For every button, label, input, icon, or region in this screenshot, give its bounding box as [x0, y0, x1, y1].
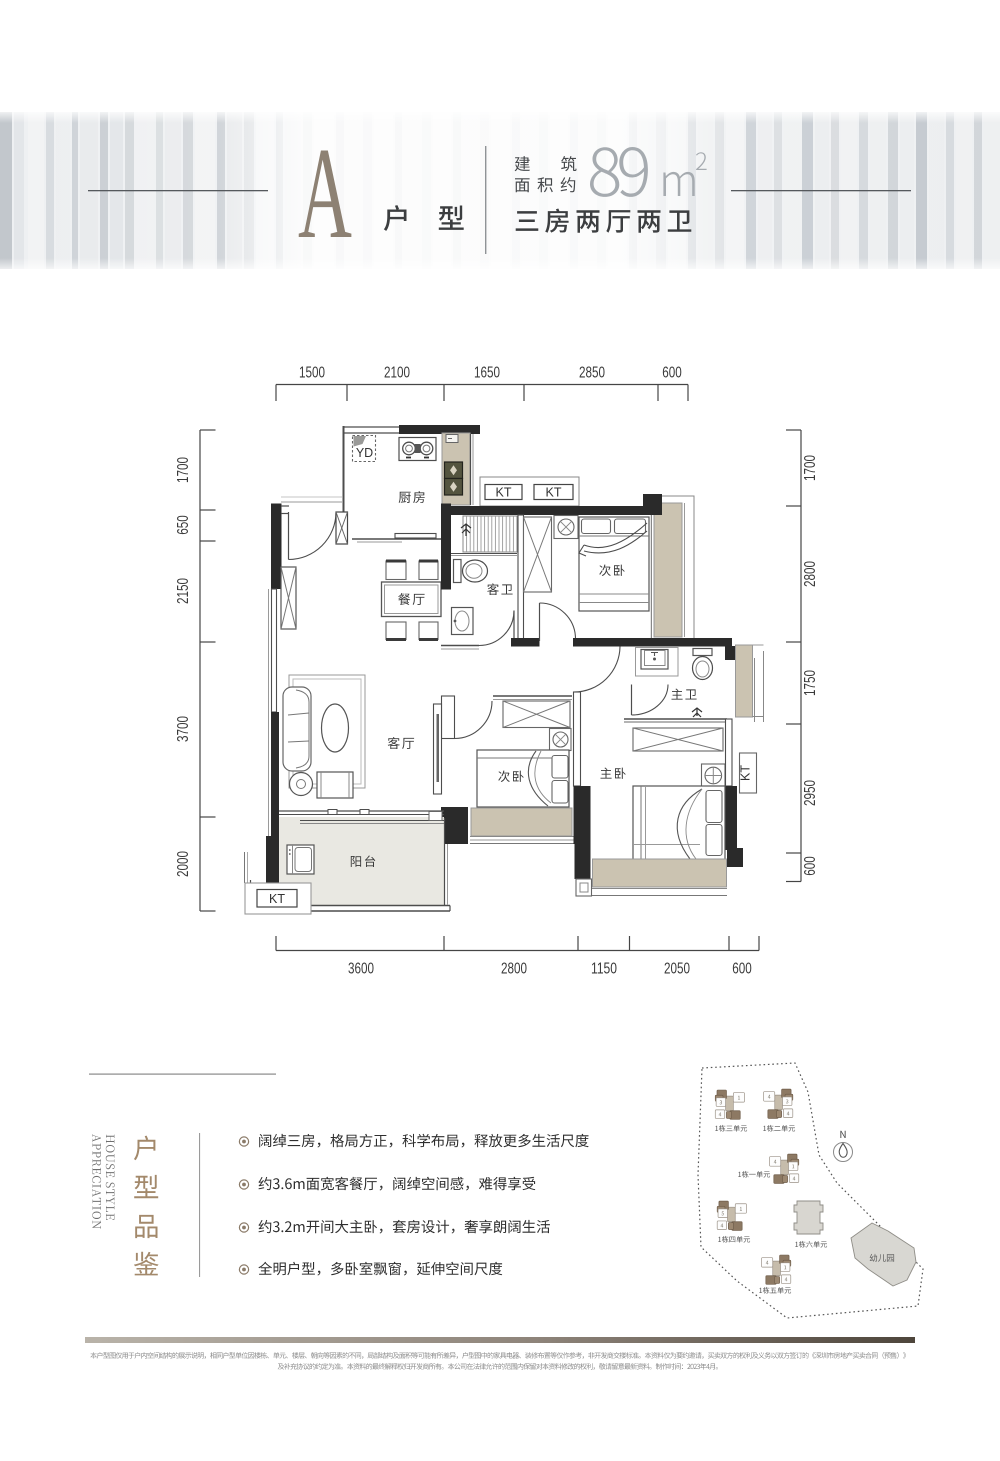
svg-text:1700: 1700: [802, 455, 819, 481]
svg-text:2950: 2950: [802, 780, 819, 806]
svg-text:2050: 2050: [664, 961, 690, 978]
svg-text:1700: 1700: [175, 457, 192, 483]
svg-text:KT: KT: [739, 765, 753, 781]
svg-text:600: 600: [732, 961, 752, 978]
svg-text:3600: 3600: [348, 961, 374, 978]
svg-text:KT: KT: [269, 892, 285, 906]
svg-text:2800: 2800: [501, 961, 527, 978]
svg-text:YD: YD: [356, 446, 373, 460]
svg-text:2850: 2850: [579, 365, 605, 382]
svg-text:1650: 1650: [474, 365, 500, 382]
svg-text:2800: 2800: [802, 561, 819, 587]
svg-text:600: 600: [662, 365, 682, 382]
svg-text:3700: 3700: [175, 716, 192, 742]
svg-text:1500: 1500: [299, 365, 325, 382]
svg-text:2000: 2000: [175, 851, 192, 877]
svg-text:KT: KT: [546, 486, 562, 500]
svg-text:1750: 1750: [802, 670, 819, 696]
svg-text:1150: 1150: [591, 961, 617, 978]
svg-text:650: 650: [175, 515, 192, 535]
svg-text:2150: 2150: [175, 578, 192, 604]
svg-text:KT: KT: [496, 486, 512, 500]
svg-text:A: A: [298, 122, 352, 267]
svg-text:2100: 2100: [384, 365, 410, 382]
svg-text:600: 600: [802, 856, 819, 876]
